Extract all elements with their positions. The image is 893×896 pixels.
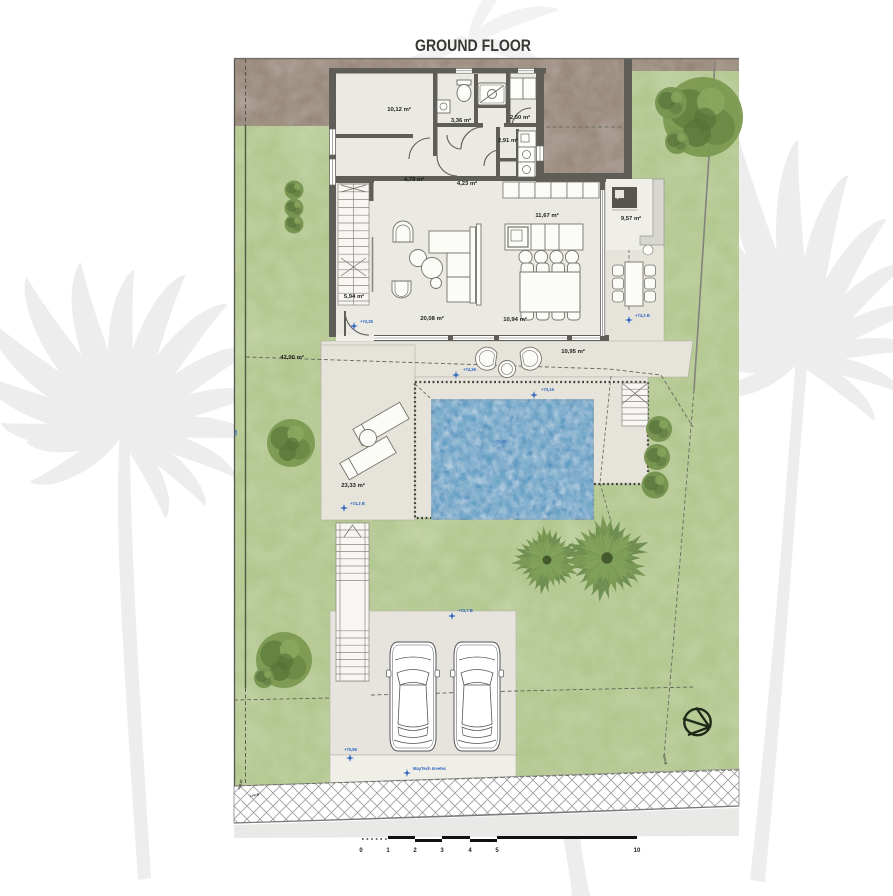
svg-text:+74,35: +74,35 <box>360 319 374 324</box>
svg-text:11,67 m²: 11,67 m² <box>535 212 558 219</box>
svg-text:3,36 m²: 3,36 m² <box>451 117 471 124</box>
svg-text:GROUND FLOOR: GROUND FLOOR <box>415 37 531 55</box>
svg-text:5,94 m²: 5,94 m² <box>344 293 364 300</box>
svg-text:20,08 m²: 20,08 m² <box>420 315 444 322</box>
svg-text:+73,16: +73,16 <box>541 387 555 392</box>
svg-text:2,50 m²: 2,50 m² <box>510 114 530 121</box>
svg-text:10: 10 <box>634 848 641 854</box>
svg-text:9,57 m²: 9,57 m² <box>621 215 641 222</box>
svg-text:4,79 m²: 4,79 m² <box>404 176 424 183</box>
svg-text:+74,3 B: +74,3 B <box>635 313 650 318</box>
svg-text:LIM: LIM <box>234 430 238 436</box>
svg-text:+74,3 B: +74,3 B <box>350 501 365 506</box>
svg-text:23,33 m²: 23,33 m² <box>341 482 365 489</box>
svg-text:42,90 m²: 42,90 m² <box>280 354 304 361</box>
svg-text:MayTech Invetec: MayTech Invetec <box>413 766 447 771</box>
svg-text:2,91 m²: 2,91 m² <box>498 137 518 144</box>
svg-text:10,94 m²: 10,94 m² <box>503 316 527 323</box>
svg-text:4,23 m²: 4,23 m² <box>457 180 477 187</box>
svg-text:+70,86: +70,86 <box>344 747 358 752</box>
svg-text:+74,35: +74,35 <box>494 439 508 444</box>
svg-text:+74,36: +74,36 <box>463 367 477 372</box>
svg-text:10,12 m²: 10,12 m² <box>387 106 411 113</box>
svg-text:+73,7 B: +73,7 B <box>458 608 473 613</box>
svg-text:10,95 m²: 10,95 m² <box>561 348 585 355</box>
